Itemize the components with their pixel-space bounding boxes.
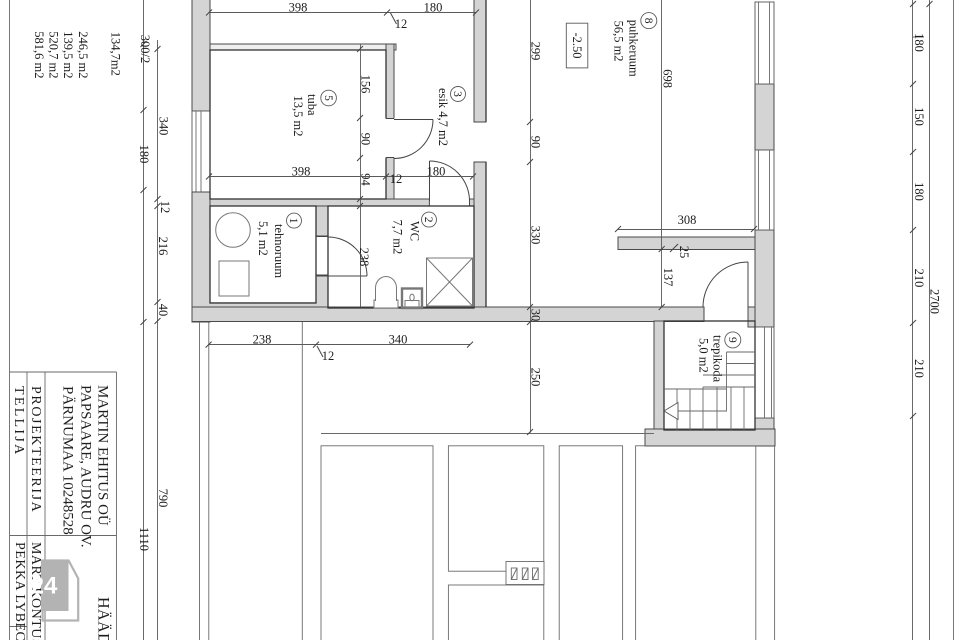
svg-text:790: 790: [156, 489, 170, 508]
svg-text:40: 40: [156, 304, 170, 317]
svg-text:520,7 m2: 520,7 m2: [47, 31, 61, 78]
svg-text:56,5 m2: 56,5 m2: [612, 21, 626, 62]
svg-text:340: 340: [157, 117, 171, 136]
svg-text:398: 398: [289, 0, 308, 14]
svg-text:tehnoruum: tehnoruum: [272, 224, 286, 278]
svg-text:180: 180: [424, 0, 443, 14]
svg-text:698: 698: [661, 69, 675, 88]
svg-text:7,7 m2: 7,7 m2: [390, 220, 404, 255]
svg-text:9: 9: [726, 337, 738, 343]
svg-text:trepikoda: trepikoda: [710, 335, 724, 383]
svg-text:90: 90: [529, 136, 543, 149]
svg-text:581,6 m2: 581,6 m2: [32, 31, 46, 78]
svg-text:134,7m2: 134,7m2: [108, 32, 122, 76]
svg-text:94: 94: [359, 173, 373, 186]
svg-text:139,5 m2: 139,5 m2: [61, 31, 75, 78]
svg-text:8: 8: [642, 18, 654, 24]
svg-text:5,0 m2: 5,0 m2: [697, 338, 711, 373]
svg-text:90: 90: [359, 133, 373, 146]
svg-text:340: 340: [389, 333, 408, 347]
svg-text:180: 180: [137, 145, 151, 164]
svg-text:250: 250: [529, 368, 543, 387]
svg-text:30: 30: [529, 309, 543, 322]
svg-text:esik 4,7 m2: esik 4,7 m2: [436, 88, 450, 146]
svg-text:PAPSAARE, AUDRU OV.: PAPSAARE, AUDRU OV.: [77, 385, 93, 548]
svg-text:2: 2: [422, 217, 434, 223]
svg-text:HÄÄDEMEESTE: HÄÄDEMEESTE: [95, 597, 113, 640]
svg-text:5: 5: [322, 95, 334, 101]
svg-text:TELLIJA: TELLIJA: [11, 386, 26, 457]
svg-text:300/2: 300/2: [138, 35, 152, 63]
svg-text:12: 12: [395, 17, 408, 31]
svg-text:MARTIN EHITUS OÜ: MARTIN EHITUS OÜ: [94, 385, 111, 526]
svg-text:tuba: tuba: [305, 94, 319, 116]
svg-text:308: 308: [678, 213, 697, 227]
svg-text:PROJEKTEERIJA: PROJEKTEERIJA: [28, 386, 43, 513]
svg-text:5,1 m2: 5,1 m2: [256, 221, 270, 256]
svg-text:210: 210: [912, 359, 926, 378]
svg-text:12: 12: [158, 201, 172, 214]
svg-text:156: 156: [359, 75, 373, 94]
svg-text:1: 1: [287, 218, 299, 224]
svg-text:1110: 1110: [137, 527, 151, 551]
svg-text:246,5 m2: 246,5 m2: [76, 31, 90, 78]
svg-text:2700: 2700: [928, 289, 942, 314]
svg-text:299: 299: [529, 42, 543, 61]
svg-text:216: 216: [156, 237, 170, 256]
svg-text:PEKKA LYBECK: PEKKA LYBECK: [12, 542, 27, 640]
svg-text:12: 12: [322, 349, 335, 363]
svg-text:180: 180: [427, 164, 446, 178]
svg-text:238: 238: [253, 333, 272, 347]
svg-text:-2.50: -2.50: [570, 32, 584, 58]
svg-text:398: 398: [292, 164, 311, 178]
svg-text:puhkeruum: puhkeruum: [626, 20, 640, 77]
svg-text:12: 12: [390, 172, 403, 186]
svg-text:25: 25: [677, 246, 691, 259]
svg-text:24: 24: [31, 573, 58, 600]
svg-text:13,5 m2: 13,5 m2: [291, 96, 305, 137]
svg-text:PÄRNUMAA 10248528: PÄRNUMAA 10248528: [60, 386, 77, 535]
svg-text:150: 150: [912, 107, 926, 126]
svg-text:330: 330: [529, 226, 543, 245]
svg-text:137: 137: [661, 268, 675, 287]
svg-text:180: 180: [912, 182, 926, 201]
svg-text:3: 3: [451, 91, 463, 97]
svg-text:WC: WC: [407, 221, 421, 241]
svg-text:238: 238: [357, 248, 371, 267]
svg-text:180: 180: [912, 33, 926, 52]
svg-text:210: 210: [912, 269, 926, 288]
